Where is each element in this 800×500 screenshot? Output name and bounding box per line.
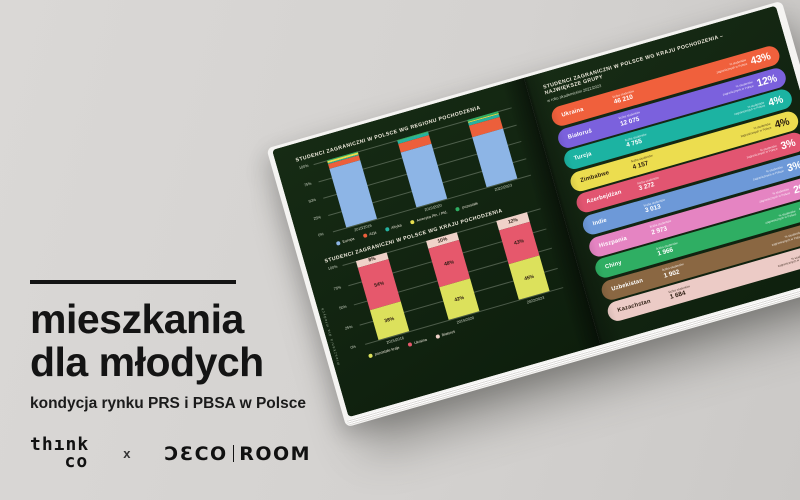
legend-item: Azja [362,230,376,238]
value-block: liczba studentów12 075 [618,111,642,127]
divider-rule [30,280,236,284]
country-label: Kazachstan [617,293,671,314]
report-spread: mieszkania dla młodych STUDENCI ZAGRANIC… [272,6,800,418]
stacked-bar: 10%48%42% [426,232,479,320]
poster-canvas: mieszkania dla młodych kondycja rynku PR… [0,0,800,500]
legend-item: Afryka [385,223,403,232]
percent-caption: % studentów zagranicznych w Polsce [742,145,779,162]
legend-dot [435,334,440,339]
value-block: liczba studentów4 755 [625,133,649,149]
logo-separator: x [123,446,130,461]
legend-dot [368,353,373,358]
cover-text-block: mieszkania dla młodych kondycja rynku PR… [30,280,350,413]
legend-label: Ukraina [414,338,428,345]
value-block: liczba studentów1 966 [656,242,680,258]
percent-caption: % studentów zagranicznych w Polsce [735,123,772,140]
segment-value-label: 38% [384,316,395,325]
legend-item: Ukraina [408,338,428,347]
legend-dot [408,342,413,347]
percent-value: 4% [767,94,785,110]
legend-label: pozostałe [462,201,479,209]
y-tick-label: 75% [303,181,311,187]
segment-value-label: 43% [514,239,525,248]
value-block: liczba studentów46 210 [612,90,636,106]
segment-value-label: 42% [454,295,465,304]
poster-subtitle: kondycja rynku PRS i PBSA w Polsce [30,395,350,413]
poster-title-line1: mieszkania [30,298,350,341]
segment-value-label: 48% [443,259,454,268]
logos-row: thınk co x ƆƐCO ROOM [30,437,311,470]
legend-label: Afryka [391,223,402,230]
legend-dot [336,241,341,246]
value-block: liczba studentów1 902 [662,263,686,279]
y-tick-label: 0% [350,345,356,350]
thinkco-logo-line2: co [30,454,89,471]
legend-item: Europa [336,237,355,246]
value-block: liczba studentów1 684 [668,285,692,301]
stacked-bar: 12%43%45% [496,212,549,300]
percent-caption: % studentów zagranicznych w Polsce [760,210,797,227]
percent-value: 3% [779,137,797,153]
value-block: liczba studentów3 272 [637,176,661,192]
thinkco-logo: thınk co [30,437,89,470]
segment-value-label: 54% [374,280,385,289]
percent-caption: % studentów zagranicznych w Polsce [767,231,800,248]
poster-title-line2: dla młodych [30,341,350,384]
legend-dot [410,220,415,225]
legend-label: Białoruś [441,330,455,338]
percent-value: 2% [792,181,800,197]
legend-dot [455,207,460,212]
percent-value: 12% [755,72,778,89]
y-tick-label: 100% [299,164,309,171]
percent-caption: % studentów zagranicznych w Polsce [773,253,800,270]
legend-dot [385,227,390,232]
percent-caption: % studentów zagranicznych w Polsce [729,101,766,118]
stacked-bar [327,151,377,227]
value-block: liczba studentów4 157 [631,155,655,171]
percent-caption: % studentów zagranicznych w Polsce [711,59,748,76]
legend-item: Białoruś [435,330,456,339]
stacked-bar: 8%54%38% [356,252,409,340]
stacked-bar [397,131,447,207]
bar-segment [401,143,448,207]
segment-value-label: 45% [523,273,534,282]
percent-value: 3% [786,159,800,175]
value-block: liczba studentów3 013 [643,198,667,214]
bar-segment [329,160,377,227]
percent-value: 43% [749,50,772,67]
bar-segment [472,129,517,188]
percent-caption: % studentów zagranicznych w Polsce [748,166,785,183]
legend-item: pozostałe [455,201,478,211]
percent-caption: % studentów zagranicznych w Polsce [754,188,791,205]
y-tick-label: 50% [308,198,316,204]
legend-label: Europa [342,237,355,244]
legend-label: Azja [369,230,377,236]
y-tick-label: 0% [318,232,324,237]
poster-title: mieszkania dla młodych [30,298,350,383]
percent-value: 4% [773,115,791,131]
percent-caption: % studentów zagranicznych w Polsce [718,81,755,98]
report-mockup: mieszkania dla młodych STUDENCI ZAGRANIC… [272,6,800,418]
decoroom-logo-right: ROOM [239,443,311,465]
value-block: liczba studentów2 973 [650,220,674,236]
y-tick-label: 100% [327,265,337,272]
stacked-bar [467,111,517,187]
decoroom-logo-left: ƆƐCO [164,443,227,465]
legend-dot [362,233,367,238]
y-tick-label: 25% [313,215,321,221]
decoroom-logo-divider [233,445,235,462]
decoroom-logo: ƆƐCO ROOM [164,443,311,465]
